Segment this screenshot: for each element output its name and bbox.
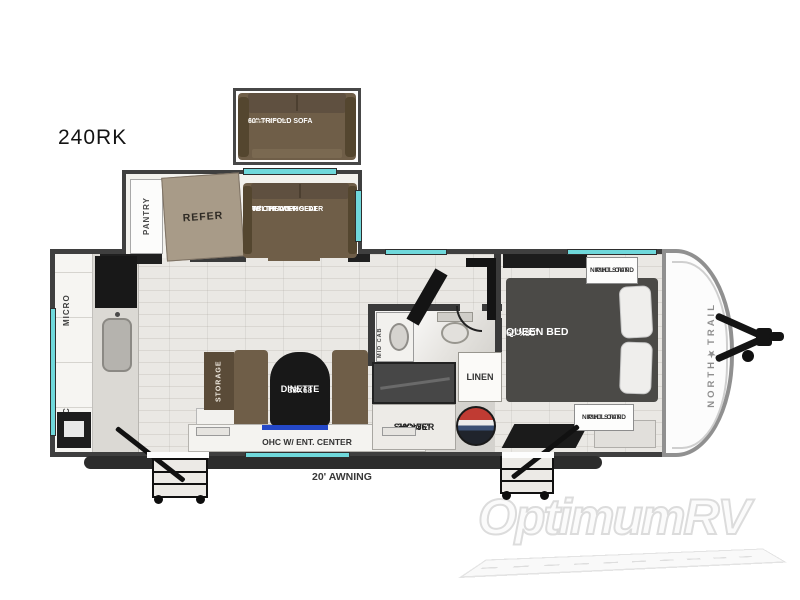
oven-door: [64, 421, 84, 437]
trifold-sofa-slideout: 60" TRIFOLD SOFA SLEEP: 47"x73": [233, 88, 361, 165]
micro-label: MICRO: [62, 262, 71, 326]
entry-door-bedroom: [502, 452, 554, 458]
watermark-road-graphic: [458, 548, 787, 578]
refrigerator: REFER: [161, 172, 245, 261]
nightstand-label-bottom: PULL OUT NIGHT STAND: [574, 404, 634, 431]
step-wheel: [540, 491, 549, 500]
dinette-bench-left: [234, 350, 268, 432]
dinette-bench-right: [332, 350, 368, 432]
theater-cushion-divider: [299, 184, 301, 198]
hitch-pin: [769, 332, 784, 341]
tongue-jack-wheel: [742, 350, 754, 362]
floorplan-canvas: OptimumRV 240RK 60" TRIFOLD SOFA SLEEP: …: [0, 0, 800, 600]
watermark-logo-text: OptimumRV: [478, 488, 749, 546]
sofa-seat-edge: [252, 149, 342, 158]
linen-closet: LINEN: [458, 352, 502, 402]
bed-size-label: 60"x80": [506, 328, 539, 339]
cooktop: [95, 256, 137, 308]
window-bottom: [245, 452, 350, 458]
portable-accessory-item: [456, 406, 496, 446]
sofa-cushion-divider: [296, 95, 298, 111]
window-slideout-right: [355, 190, 362, 242]
kitchen-sink: [102, 318, 132, 372]
theater-label-line3: TBL TRAYS: [252, 205, 291, 214]
sofa-armrest-left: [238, 97, 249, 157]
bathroom-wall: [368, 304, 375, 366]
cabinet-face: [196, 427, 230, 436]
window-top-center: [385, 249, 447, 255]
pillow: [619, 285, 654, 339]
model-number-label: 240RK: [58, 126, 127, 150]
window-slideout-top: [243, 168, 337, 175]
sofa-label-line2: SLEEP: 47"x73": [248, 119, 288, 125]
step-tread: [154, 483, 206, 485]
pillow: [619, 341, 653, 394]
storage-label: STORAGE: [204, 352, 234, 410]
window-rear: [50, 308, 56, 436]
tv-icon: [262, 425, 328, 430]
step-wheel: [502, 491, 511, 500]
dinette-storage-box: STORAGE: [204, 352, 234, 410]
entertainment-center-label: OHC W/ ENT. CENTER: [188, 437, 426, 447]
corner-cabinet: [487, 258, 496, 320]
awning-label: 20' AWNING: [312, 471, 372, 483]
trifold-sofa: 60" TRIFOLD SOFA SLEEP: 47"x73": [238, 93, 356, 160]
bathroom-sink: [389, 323, 409, 351]
nightstand-label-top: PULL OUT NIGHT STAND: [586, 257, 638, 284]
oven-appliance: [57, 412, 91, 448]
mid-cab-label: MID CAB: [377, 316, 383, 358]
dinette-table: DINETTE 38X68: [270, 352, 330, 426]
sofa-armrest-right: [345, 97, 356, 157]
nightstand-line2: NIGHT STAND: [590, 267, 634, 275]
pantry-label: PANTRY: [131, 180, 162, 253]
step-tread: [502, 480, 552, 482]
theater-seat: 60" THEATER SEAT W/ OPT CUPHOLDER TBL TR…: [243, 183, 357, 258]
nightstand-line2: NIGHT STAND: [582, 414, 626, 422]
cabinet-face: [382, 427, 416, 436]
watermark: OptimumRV: [468, 486, 800, 590]
shower-enclosure: [372, 362, 456, 404]
bedroom-wardrobe: [503, 254, 587, 268]
pantry-cabinet: PANTRY: [130, 179, 163, 254]
entry-door-main: [147, 452, 209, 458]
window-top-bedroom: [567, 249, 657, 255]
step-tread: [154, 471, 206, 473]
shower-seat-line: [380, 377, 450, 390]
step-wheel: [154, 495, 163, 504]
theater-armrest-left: [243, 186, 252, 254]
faucet-icon: [115, 312, 120, 317]
step-wheel: [196, 495, 205, 504]
watermark-road-dashes: [480, 555, 765, 569]
dinette-size-label: 38X68: [288, 385, 313, 395]
